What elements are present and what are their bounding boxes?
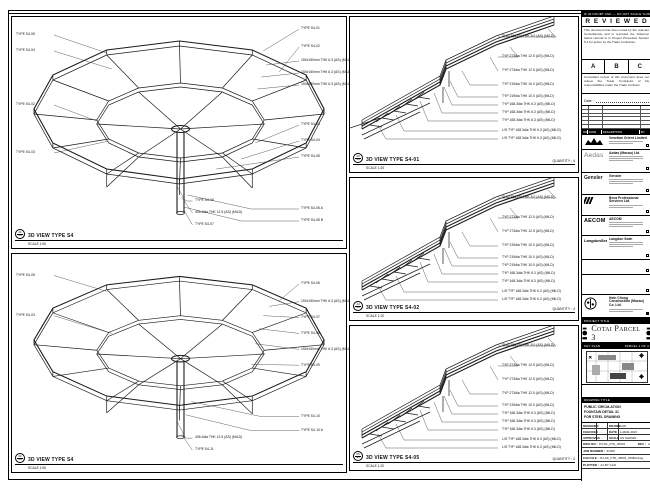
key-plan-drawing (586, 351, 648, 383)
info-value: 1-MAR-2016 (619, 429, 650, 434)
view-title-block: 24 S4 3D VIEW TYPE S4-02 QUANTITY : 4 SC… (353, 301, 575, 318)
date-fill-line (596, 99, 649, 103)
info-label: DRAWN (608, 423, 619, 428)
detail-sheet-ref: S4 (18, 234, 22, 237)
rev-col-by: BY (640, 130, 650, 134)
company-checkbox (646, 189, 650, 193)
view-scale: SCALE 1:20 (366, 166, 575, 170)
info-value: - (597, 435, 608, 440)
info-value: AS SHOWN (619, 435, 650, 440)
reviewed-note-text: Consultant review of this document does … (582, 74, 650, 88)
key-plan-label: KEY PLAN (584, 344, 600, 348)
type-label: TYPE S4-03 (16, 314, 35, 318)
info-label: APPROVED (582, 435, 597, 440)
dwg-no-value: P3-SK_FTD_45001 (599, 442, 625, 446)
company-name: Aedas (Macau) Ltd. (609, 152, 649, 156)
view-title-block: 21 S4 3D VIEW TYPE S4 SCALE 1:50 (15, 229, 343, 246)
member-label: TYP 168.3dia THK 6.3 (AS) (MILD) (502, 420, 555, 424)
member-label: SHS150x150 THK 8.0 (AS) (MILD) (502, 196, 554, 200)
langdon-seah-logo: LangdonSeah (584, 238, 607, 243)
member-label: L/S TYP 168.3dia THK 6.3 (AS) (MILD) (502, 438, 561, 442)
member-label: TYP 219dia THK 10.0 (AS) (MILD) (502, 83, 554, 87)
view-title: 3D VIEW TYPE S4-05 (366, 455, 419, 461)
quantity-label: QUANTITY : 4 (553, 159, 576, 163)
type-label: TYPE S4-04 (16, 49, 35, 53)
umbrella-wireframe-drawing (12, 254, 348, 454)
type-label: TYPE S4-05 (16, 33, 35, 37)
info-label: DATE (608, 429, 619, 434)
member-label: TYPE S4-10 A (301, 429, 323, 433)
member-label: TYP 168.3dia THK 6.3 (AS) (MILD) (502, 272, 555, 276)
company-checkbox (646, 167, 650, 171)
hsin-chong-circle-logo (584, 297, 607, 310)
dwg-no-row: DWG NO : P3-SK_FTD_45001 REV : A (582, 441, 650, 448)
plot-label: PLOTTED : (583, 463, 599, 467)
detail-sheet-ref: S4 (356, 456, 360, 459)
status-option-b: B (605, 60, 628, 73)
title-block-column: IF IN DOUBT ASK — DO NOT SCALE THIS DRAW… (581, 11, 650, 481)
member-label: 150x150mm THK 6.3 (AS) (MILD) (301, 348, 352, 352)
gensler-logo: Gensler (584, 175, 607, 181)
company-aedas: Aedas Aedas (Macau) Ltd. (582, 150, 650, 173)
member-label: L/S TYP 168.3dia THK 6.3 (AS) (MILD) (502, 129, 561, 133)
member-label: TYPE S4-06 (195, 199, 214, 203)
member-label: TYPE S4-10 (301, 415, 320, 419)
status-option-c: C (629, 60, 650, 73)
info-label: SCALE (608, 435, 619, 440)
umbrella-wireframe-drawing (12, 17, 348, 231)
reviewed-note: Consultant review of this document does … (582, 74, 650, 94)
company-empty-2 (582, 275, 650, 295)
detail-sheet-ref: S4 (18, 458, 22, 461)
view-scale: SCALE 1:20 (366, 464, 575, 468)
job-number-row: JOB NUMBER : 31326 (582, 448, 650, 455)
rev-label: REV : (638, 442, 646, 446)
company-checkbox (646, 230, 650, 234)
info-value: - (597, 423, 608, 428)
detail-sheet-ref: S4 (356, 158, 360, 161)
member-label: TYPE S4-03 (301, 123, 320, 127)
aecom-logo: AECOM (584, 218, 607, 224)
member-label: TYP 219dia THK 10.0 (AS) (MILD) (502, 264, 554, 268)
detail-bubble: 26 S4 (353, 451, 363, 461)
member-label: TYP 168.3dia THK 6.3 (AS) (MILD) (502, 111, 555, 115)
member-label: L/S TYP 168.3dia THK 6.3 (AS) (MILD) (502, 137, 561, 141)
member-label: TYPE S4-04 (301, 139, 320, 143)
member-label: TYP 219dia THK 10.0 (AS) (MILD) (502, 95, 554, 99)
member-label: TYPE S4-07 (301, 316, 320, 320)
info-value: CAD (619, 423, 650, 428)
info-label: DESIGNED (582, 423, 597, 428)
company-name: Beca Professional Services Ltd. (609, 197, 649, 205)
view-title: 3D VIEW TYPE S4-01 (366, 157, 419, 163)
company-name: AECOM (609, 218, 649, 222)
view-title: 3D VIEW TYPE S4 (28, 233, 74, 239)
member-label: TYPE S4-08 (301, 332, 320, 336)
view-title-block: 26 S4 3D VIEW TYPE S4-05 QUANTITY : 4 SC… (353, 451, 575, 468)
reviewed-body: This document has been noted by the rele… (582, 27, 650, 45)
member-label: TYPE S4-09 (301, 364, 320, 368)
member-label: TYP 168.3dia THK 6.3 (AS) (MILD) (502, 119, 555, 123)
reviewed-stamp: R E V I E W E D This document has been n… (582, 17, 650, 60)
quantity-label: QUANTITY : 4 (553, 307, 576, 311)
type-label: TYPE S4-03 (16, 151, 35, 155)
member-label: SHS150x150 THK 8.0 (AS) (MILD) (502, 344, 554, 348)
member-label: TYP 273dia THK 12.5 (AS) (MILD) (502, 216, 554, 220)
cad-file-value: P3-SK_FTD_45001_S5000.dwg (600, 456, 643, 460)
drawing-title-line: FOR STEEL DRAWING (584, 415, 649, 420)
member-label: TYPE S4-05 (301, 155, 320, 159)
beca-slashes-logo (584, 197, 607, 204)
ornament-right-icon (646, 327, 650, 340)
panel-3d-view-s4-01: SHS150x150 THK 8.0 (AS) (MILD) TYP 273di… (349, 16, 579, 173)
key-plan-parcel-label: PARCEL 1 OF 3 (625, 344, 649, 348)
member-label: TYP 273dia THK 12.5 (AS) (MILD) (502, 55, 554, 59)
drawing-sheet: TYPE S4-01 TYPE S4-02 150x150mm THK 6.3 … (8, 10, 650, 480)
date-row: Date : (582, 94, 650, 106)
type-label: TYPE S4-02 (16, 103, 35, 107)
member-label: TYPE S4-11 (195, 448, 214, 452)
view-title-block: 23 S4 3D VIEW TYPE S4-01 QUANTITY : 4 SC… (353, 153, 575, 170)
panel-3d-view-s4-05: SHS150x150 THK 8.0 (AS) (MILD) TYP 273di… (349, 325, 579, 471)
review-status-options: A B C (582, 60, 650, 74)
info-value: - (597, 429, 608, 434)
member-label: TYPE S4-05 A (301, 207, 323, 211)
cad-file-row: CAD FILE : P3-SK_FTD_45001_S5000.dwg (582, 455, 650, 462)
company-name: Langdon Seah (609, 238, 649, 242)
member-label: TYP 168.3dia THK 6.3 (AS) (MILD) (502, 428, 555, 432)
job-number-value: 31326 (607, 449, 615, 453)
detail-bubble: 23 S4 (353, 153, 363, 163)
company-checkbox (646, 144, 650, 148)
member-label: TYP 273dia THK 12.5 (AS) (MILD) (502, 392, 554, 396)
detail-bubble: 22 S4 (15, 453, 25, 463)
company-name: Gensler (609, 175, 649, 179)
company-beca: Beca Professional Services Ltd. (582, 195, 650, 216)
view-scale: SCALE 1:20 (366, 314, 575, 318)
detail-bubble: 24 S4 (353, 301, 363, 311)
member-label: TYP 219dia THK 10.0 (AS) (MILD) (502, 404, 554, 408)
member-label: TYPE S4-07 (195, 223, 214, 227)
company-checkbox (646, 269, 650, 273)
type-label: TYPE S4-05 (16, 274, 35, 278)
company-checkbox (646, 289, 650, 293)
member-label: TYPE S4-05 B (301, 219, 323, 223)
member-label: TYPE S4-06 (301, 282, 320, 286)
reviewed-title: R E V I E W E D (582, 17, 650, 27)
revision-grid (582, 106, 650, 129)
member-label: TYP 273dia THK 12.5 (AS) (MILD) (502, 378, 554, 382)
view-title: 3D VIEW TYPE S4 (28, 457, 74, 463)
company-checkbox (646, 254, 650, 258)
company-checkbox (646, 210, 650, 214)
project-title-box: Cotai Parcel 3 (582, 324, 650, 343)
status-option-a: A (582, 60, 605, 73)
member-label: 150x150mm THK 6.3 (AS) (MILD) (301, 300, 352, 304)
member-label: 406.4dia THK 12.5 (AS) (MILD) (195, 211, 242, 215)
info-label: CHECKED (582, 429, 597, 434)
plot-value: A1 BY CAD (600, 463, 616, 467)
dwg-no-label: DWG NO : (583, 442, 598, 446)
member-label: TYPE S4-01 (301, 27, 320, 31)
venetian-lion-icon (584, 137, 607, 146)
member-label: TYP 219dia THK 10.0 (AS) (MILD) (502, 256, 554, 260)
panel-3d-view-type-s4-top: TYPE S4-01 TYPE S4-02 150x150mm THK 6.3 … (11, 16, 347, 249)
cad-file-label: CAD FILE : (583, 456, 599, 460)
member-label: 150x150mm THK 6.3 (AS) (MILD) (301, 83, 352, 87)
key-plan-box (582, 349, 650, 385)
member-label: 406.4dia THK 12.5 (AS) (MILD) (195, 436, 242, 440)
member-label: 150x150mm THK 6.3 (AS) (MILD) (301, 71, 352, 75)
member-label: 150x150mm THK 6.3 (AS) (MILD) (301, 59, 352, 63)
view-scale: SCALE 1:50 (28, 242, 343, 246)
plot-row: PLOTTED : A1 BY CAD (582, 462, 650, 469)
company-langdon-seah: LangdonSeah Langdon Seah (582, 236, 650, 260)
company-name: Venetian Orient Limited (609, 137, 649, 141)
member-label: SHS150x150 THK 8.0 (AS) (MILD) (502, 35, 554, 39)
member-label: TYPE S4-02 (301, 45, 320, 49)
member-label: TYP 168.3dia THK 6.3 (AS) (MILD) (502, 103, 555, 107)
member-label: TYP 273dia THK 12.5 (AS) (MILD) (502, 364, 554, 368)
company-checkbox (646, 312, 650, 316)
view-title: 3D VIEW TYPE S4-02 (366, 305, 419, 311)
company-empty-1 (582, 260, 650, 275)
job-number-label: JOB NUMBER : (583, 449, 605, 453)
detail-bubble: 21 S4 (15, 229, 25, 239)
ornament-left-icon (582, 327, 587, 340)
drawing-title-box: PUBLIC CIRCULATION FOUNTAIN DETAIL 31 FO… (582, 403, 650, 423)
member-label: L/S TYP 168.3dia THK 6.3 (AS) (MILD) (502, 446, 561, 450)
view-title-block: 22 S4 3D VIEW TYPE S4 SCALE 1:50 (15, 453, 343, 470)
project-name: Cotai Parcel 3 (591, 324, 641, 342)
company-hsin-chong: Hsin Chong Construction (Macau) Co. Ltd. (582, 295, 650, 318)
member-label: TYP 168.3dia THK 6.3 (AS) (MILD) (502, 280, 555, 284)
company-gensler: Gensler Gensler (582, 173, 650, 195)
member-label: L/S TYP 168.3dia THK 6.3 (AS) (MILD) (502, 290, 561, 294)
company-name: Hsin Chong Construction (Macau) Co. Ltd. (609, 297, 649, 309)
aedas-logo: Aedas (584, 152, 607, 159)
member-label: TYP 168.3dia THK 6.3 (AS) (MILD) (502, 412, 555, 416)
panel-3d-view-s4-02: SHS150x150 THK 8.0 (AS) (MILD) TYP 273di… (349, 177, 579, 321)
rev-col-description: DESCRIPTION (602, 130, 640, 134)
date-label: Date : (584, 99, 594, 103)
member-label: TYP 273dia THK 12.5 (AS) (MILD) (502, 69, 554, 73)
detail-sheet-ref: S4 (356, 306, 360, 309)
panel-3d-view-type-s4-bottom: TYPE S4-06 150x150mm THK 6.3 (AS) (MILD)… (11, 253, 347, 473)
view-scale: SCALE 1:50 (28, 466, 343, 470)
company-venetian: Venetian Orient Limited (582, 135, 650, 150)
company-aecom: AECOM AECOM (582, 216, 650, 236)
rev-col-date: DATE (588, 130, 602, 134)
member-label: TYP 273dia THK 12.5 (AS) (MILD) (502, 230, 554, 234)
quantity-label: QUANTITY : 4 (553, 457, 576, 461)
member-label: TYP 219dia THK 10.0 (AS) (MILD) (502, 244, 554, 248)
